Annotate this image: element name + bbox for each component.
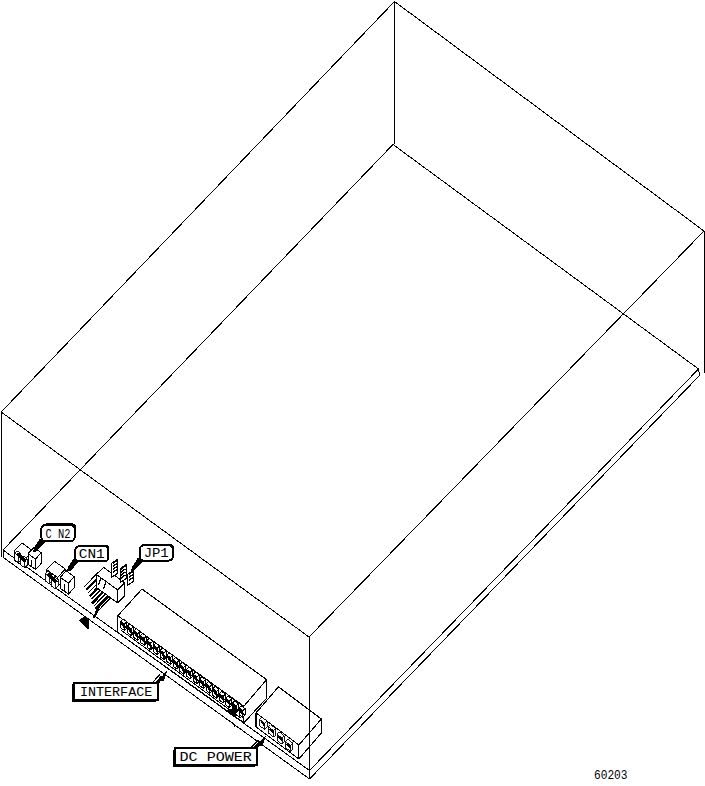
svg-text:INTERFACE: INTERFACE xyxy=(80,686,152,700)
svg-text:CN1: CN1 xyxy=(79,548,105,562)
svg-text:60203: 60203 xyxy=(594,768,628,783)
svg-text:DC POWER: DC POWER xyxy=(180,751,253,765)
svg-text:JP1: JP1 xyxy=(144,547,169,561)
svg-text:C N2: C N2 xyxy=(46,528,71,542)
